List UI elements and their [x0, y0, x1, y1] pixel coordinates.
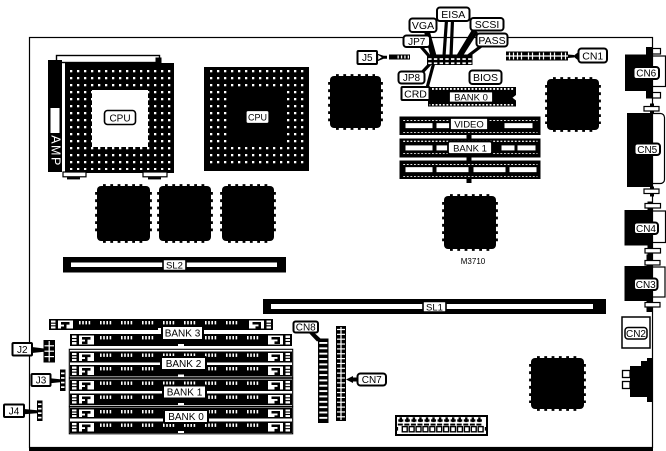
- svg-text:BANK 2: BANK 2: [166, 359, 202, 370]
- svg-text:SL1: SL1: [426, 302, 443, 313]
- svg-text:BIOS: BIOS: [473, 72, 498, 84]
- svg-text:J5: J5: [362, 53, 373, 64]
- svg-text:AMP: AMP: [49, 135, 63, 167]
- svg-text:J3: J3: [36, 376, 47, 387]
- svg-text:SCSI: SCSI: [475, 19, 500, 31]
- svg-text:CN5: CN5: [637, 145, 657, 156]
- svg-text:BANK 1: BANK 1: [453, 143, 487, 154]
- svg-text:J4: J4: [9, 406, 20, 417]
- svg-text:J2: J2: [17, 345, 28, 356]
- svg-text:CN8: CN8: [296, 323, 316, 334]
- svg-text:BANK 3: BANK 3: [165, 329, 201, 340]
- svg-text:CN4: CN4: [636, 224, 656, 235]
- svg-text:JP7: JP7: [408, 37, 426, 48]
- svg-text:PASS: PASS: [478, 35, 505, 47]
- svg-text:EISA: EISA: [441, 9, 465, 21]
- svg-text:JP8: JP8: [403, 73, 421, 84]
- svg-text:CRD: CRD: [404, 88, 427, 100]
- svg-text:CN7: CN7: [362, 375, 382, 386]
- svg-text:CN2: CN2: [626, 329, 646, 340]
- svg-text:CN3: CN3: [636, 280, 656, 291]
- svg-text:CN6: CN6: [636, 69, 656, 80]
- svg-text:CN1: CN1: [582, 50, 603, 62]
- svg-text:VIDEO: VIDEO: [454, 120, 484, 131]
- svg-text:VGA: VGA: [412, 20, 434, 32]
- svg-text:BANK 0: BANK 0: [168, 412, 204, 423]
- svg-text:CPU: CPU: [109, 114, 130, 125]
- svg-text:BANK 1: BANK 1: [167, 388, 203, 399]
- svg-text:M3710: M3710: [461, 257, 486, 266]
- svg-text:SL2: SL2: [166, 261, 183, 272]
- svg-text:BANK 0: BANK 0: [454, 92, 488, 103]
- svg-text:CPU: CPU: [248, 113, 267, 123]
